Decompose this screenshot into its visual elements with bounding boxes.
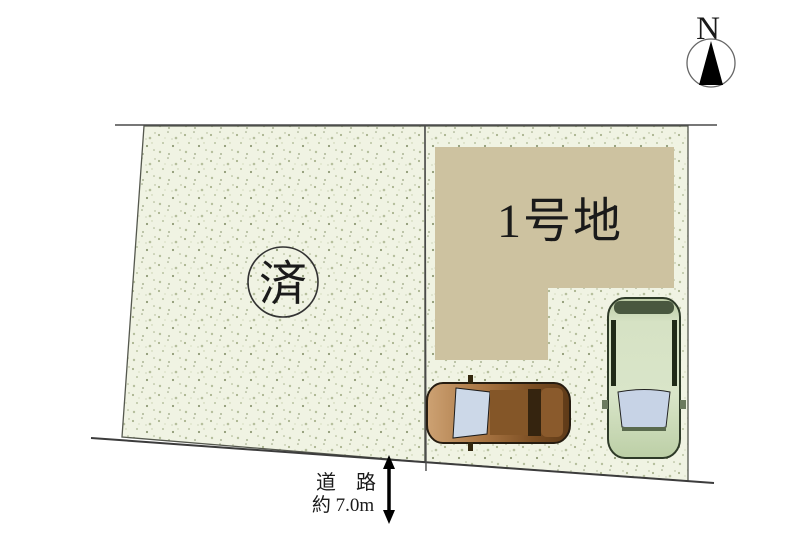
road-label: 道 路	[316, 471, 376, 494]
car-brown-top-view	[427, 375, 570, 451]
car-brown-mirror-bottom	[468, 442, 473, 451]
lot-layout-diagram: 1号地 済 N 道 路 約 7.0m	[0, 0, 801, 534]
car-green-mirror-left	[602, 400, 608, 409]
north-compass: N	[687, 11, 735, 87]
car-green-windshield	[618, 390, 670, 430]
car-green-window-left	[611, 320, 616, 386]
diagram-canvas: 1号地 済 N 道 路 約 7.0m	[0, 0, 801, 534]
car-brown-rear-window	[528, 389, 541, 436]
road-width-label: 約 7.0m	[312, 494, 375, 516]
parcel-divider-line	[425, 126, 426, 471]
car-green-rear-window	[614, 301, 674, 314]
car-green-window-right	[672, 320, 677, 386]
car-brown-roof	[490, 390, 528, 435]
car-green-cowl	[622, 427, 666, 431]
road-annotation: 道 路 約 7.0m	[312, 455, 395, 524]
car-green-mirror-right	[680, 400, 686, 409]
car-green-top-view	[602, 298, 686, 458]
road-width-arrow	[383, 455, 395, 524]
lot1-label: 1号地	[497, 195, 623, 248]
arrowhead-down-icon	[383, 510, 395, 524]
car-brown-trunk	[541, 388, 563, 437]
car-brown-mirror-top	[468, 375, 473, 384]
car-brown-windshield	[453, 388, 490, 438]
sold-stamp-text: 済	[259, 258, 307, 311]
car-green-body	[608, 298, 680, 458]
